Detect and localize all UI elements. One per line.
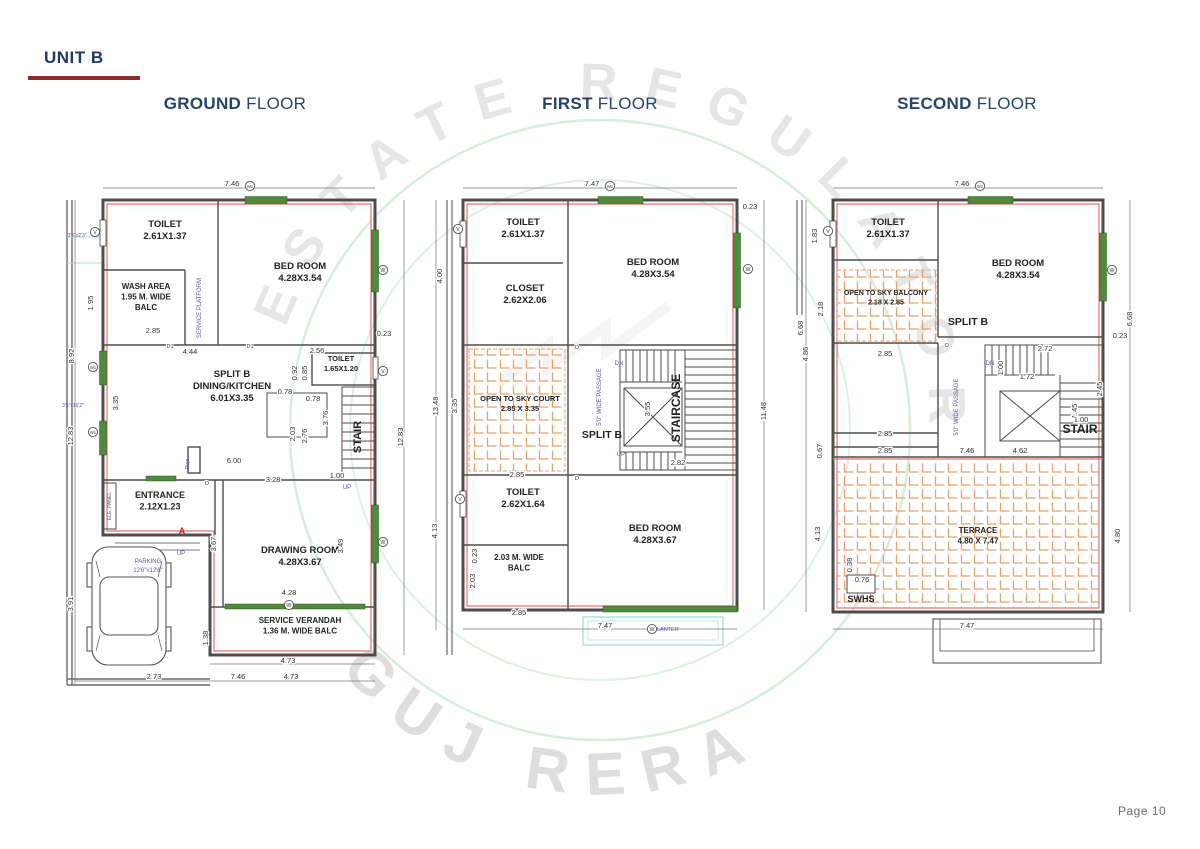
annotation-label: 3'5"x16'2" <box>62 403 84 409</box>
dim-label: 3.55 <box>643 402 652 417</box>
door-label: D <box>945 343 949 349</box>
dim-label: 3.49 <box>336 539 345 554</box>
room-label: CLOSET2.62X2.06 <box>503 283 546 306</box>
door-label: D <box>575 476 579 482</box>
room-label: STAIRCASE <box>669 374 683 442</box>
windows <box>968 197 1107 302</box>
floor-title-second: SECOND FLOOR <box>877 94 1057 114</box>
dim-label: 7.46 <box>960 446 975 455</box>
room-label: TOILET1.65X1.20 <box>324 354 358 373</box>
annotation-label: 12'6"x12'6" <box>133 568 163 574</box>
floor-plan-ground: TOILET2.61X1.37BED ROOM4.28X3.54WASH ARE… <box>60 175 420 715</box>
mark-letter: W1 <box>607 184 614 189</box>
room-label: BED ROOM4.28X3.54 <box>992 258 1044 281</box>
annotation-label: Puja <box>185 458 191 470</box>
dim-label: 3.76 <box>321 411 330 426</box>
dim-label: 3.91 <box>66 597 75 612</box>
dim-label: 2.82 <box>671 458 686 467</box>
floor-title-first: FIRST FLOOR <box>515 94 685 114</box>
mark-letter: V <box>826 229 830 235</box>
dim-label: 4.62 <box>1013 446 1028 455</box>
annotation-label: PARKING <box>135 559 162 565</box>
dim-label: 7.47 <box>960 621 975 630</box>
floor-title-rest: FLOOR <box>977 94 1037 113</box>
dim-label: 1.00 <box>1074 415 1089 424</box>
annotation-label: PLANTER <box>653 627 678 633</box>
annotation-label: 5'0" WIDE PASSAGE <box>954 378 960 435</box>
annotation-label: ELE. PANEL <box>107 492 113 520</box>
dim-label: 2.85 <box>510 470 525 479</box>
room-label: 2.03 M. WIDEBALC <box>494 553 544 573</box>
dim-label: 2.18 <box>816 302 825 317</box>
room-label: BED ROOM4.28X3.67 <box>629 523 681 546</box>
dim-label: 4.13 <box>813 527 822 542</box>
dim-label: 2.85 <box>146 326 161 335</box>
dim-label: 2.72 <box>1038 344 1053 353</box>
room-label: SERVICE VERANDAH1.36 M. WIDE BALC <box>259 616 342 636</box>
floor-plan-second: TOILET2.61X1.37BED ROOM4.28X3.54OPEN TO … <box>790 175 1185 715</box>
door-label: D1 <box>166 344 173 350</box>
mark-letter: W <box>650 627 655 633</box>
annotation-label: 3'5"x2'3" <box>67 233 86 239</box>
dim-label: 2.45 <box>1095 382 1104 397</box>
dim-label: 1.00 <box>330 471 345 480</box>
room-label: STAIR <box>1062 422 1097 436</box>
room-label: TOILET2.62X1.64 <box>501 487 545 510</box>
dim-label: 4.00 <box>435 269 444 284</box>
room-label: STAIR <box>352 421 364 453</box>
dim-label: 2.85 <box>512 608 527 617</box>
room-label: BED ROOM4.28X3.54 <box>274 261 326 284</box>
door-label: D <box>205 481 209 487</box>
annotation-label: DN <box>986 361 995 367</box>
dim-label: 1.95 <box>86 296 95 311</box>
unit-title: UNIT B <box>44 48 104 68</box>
mark-letter: W <box>287 603 292 609</box>
dim-label: 3.28 <box>266 475 281 484</box>
dim-label: 2.56 <box>310 346 325 355</box>
mark-letter: V <box>381 369 385 375</box>
annotation-label: 5'0" WIDE PASSAGE <box>597 368 603 425</box>
room-label: TOILET2.61X1.37 <box>866 217 909 240</box>
room-label: SPLIT B <box>582 429 623 441</box>
dim-label: 0.67 <box>815 444 824 459</box>
dim-label: 6.68 <box>1125 312 1134 327</box>
room-label: SPLIT B <box>948 316 989 328</box>
floor-title-bold: SECOND <box>897 94 972 113</box>
dim-label: 0.38 <box>845 558 854 573</box>
title-underline <box>28 76 140 80</box>
roof-annex <box>933 619 1101 663</box>
dim-label: 7.46 <box>231 672 246 681</box>
annotation-label: UP <box>343 485 351 491</box>
dim-label: 3.35 <box>111 396 120 411</box>
dim-label: 1.83 <box>810 229 819 244</box>
floor-title-bold: FIRST <box>542 94 593 113</box>
mark-letter: V <box>93 230 97 236</box>
dim-label: 7.47 <box>585 179 600 188</box>
room-label: WASH AREA1.95 M. WIDEBALC <box>121 282 171 312</box>
annotation-label: UP <box>177 551 185 557</box>
mark-letter: W1 <box>247 184 254 189</box>
dim-label: 0.78 <box>278 387 293 396</box>
room-label: TOILET2.61X1.37 <box>501 217 544 240</box>
room-label: BED ROOM4.28X3.54 <box>627 257 679 280</box>
annotation-label: A <box>179 526 186 536</box>
mark-letter: W <box>1110 268 1115 274</box>
dim-label: 0.92 <box>290 366 299 381</box>
dim-label: 0.85 <box>300 366 309 381</box>
dim-label: 7.46 <box>955 179 970 188</box>
door-label: D1 <box>246 344 253 350</box>
dim-label: 2.73 <box>147 672 162 681</box>
dim-label: 4.44 <box>183 347 198 356</box>
dim-label: 2.85 <box>878 446 893 455</box>
room-label: SPLIT BDINING/KITCHEN6.01X3.35 <box>193 369 271 404</box>
dim-label: 1.72 <box>1020 372 1035 381</box>
dim-label: 1.00 <box>996 361 1005 376</box>
mark-letter: W <box>381 268 386 274</box>
dim-label: 0.23 <box>377 329 392 338</box>
dim-label: 4.73 <box>281 656 296 665</box>
mark-letter: V <box>456 227 460 233</box>
dim-label: 2.03 <box>468 574 477 589</box>
room-label: DRAWING ROOM4.28X3.67 <box>261 545 339 568</box>
dim-label: 8.92 <box>67 349 76 364</box>
door-label: D <box>575 345 579 351</box>
dim-label: 3.67 <box>209 537 218 552</box>
compound-wall <box>447 200 452 655</box>
dim-label: 4.13 <box>430 524 439 539</box>
floor-title-rest: FLOOR <box>598 94 658 113</box>
dim-label: 4.86 <box>801 347 810 362</box>
dim-label: 2.85 <box>878 349 893 358</box>
dim-label: 2.76 <box>300 429 309 444</box>
mark-letter: W1 <box>90 430 97 435</box>
mark-letter: W <box>746 267 751 273</box>
dim-label: 0.23 <box>470 549 479 564</box>
annotation-label: SERVICE PLATFORM <box>197 278 203 338</box>
page-number: Page 10 <box>1118 804 1166 818</box>
dim-label: 12.83 <box>396 428 405 447</box>
compound-wall <box>797 200 802 315</box>
dim-label: 6.00 <box>227 456 242 465</box>
dim-label: 11.48 <box>759 402 768 420</box>
dim-label: 7.46 <box>225 179 240 188</box>
floor-title-rest: FLOOR <box>246 94 306 113</box>
dim-label: 4.80 <box>1113 529 1122 544</box>
floor-plan-first: TOILET2.61X1.37CLOSET2.62X2.06BED ROOM4.… <box>420 175 790 715</box>
dim-label: 0.23 <box>743 202 758 211</box>
mark-letter: W1 <box>90 365 97 370</box>
mark-letter: W <box>381 540 386 546</box>
room-label: SWHS <box>848 594 875 604</box>
dim-label: 0.23 <box>1113 331 1128 340</box>
floor-title-bold: GROUND <box>164 94 241 113</box>
room-label: TERRACE4.80 X 7.47 <box>958 526 999 546</box>
dim-label: 6.68 <box>796 321 805 336</box>
dim-label: 4.73 <box>284 672 299 681</box>
room-label: ENTRANCE2.12X1.23 <box>135 490 185 512</box>
annotation-label: UP <box>617 452 625 458</box>
dim-label: 12.83 <box>66 427 75 446</box>
room-label: TOILET2.61X1.37 <box>143 219 186 242</box>
dim-label: 2.85 <box>878 429 893 438</box>
dim-label: 13.48 <box>431 397 440 416</box>
mark-letter: W1 <box>977 184 984 189</box>
dim-label: 2.03 <box>288 427 297 442</box>
dim-label: 3.35 <box>450 399 459 414</box>
dim-label: 7.47 <box>598 621 613 630</box>
dim-label: 0.78 <box>306 394 321 403</box>
floor-title-ground: GROUND FLOOR <box>150 94 320 114</box>
mark-letter: V <box>458 497 462 503</box>
dim-label: 4.28 <box>282 588 297 597</box>
dim-label: 1.38 <box>201 631 210 646</box>
dim-label: 0.76 <box>855 575 870 584</box>
annotation-label: DN <box>615 361 624 367</box>
